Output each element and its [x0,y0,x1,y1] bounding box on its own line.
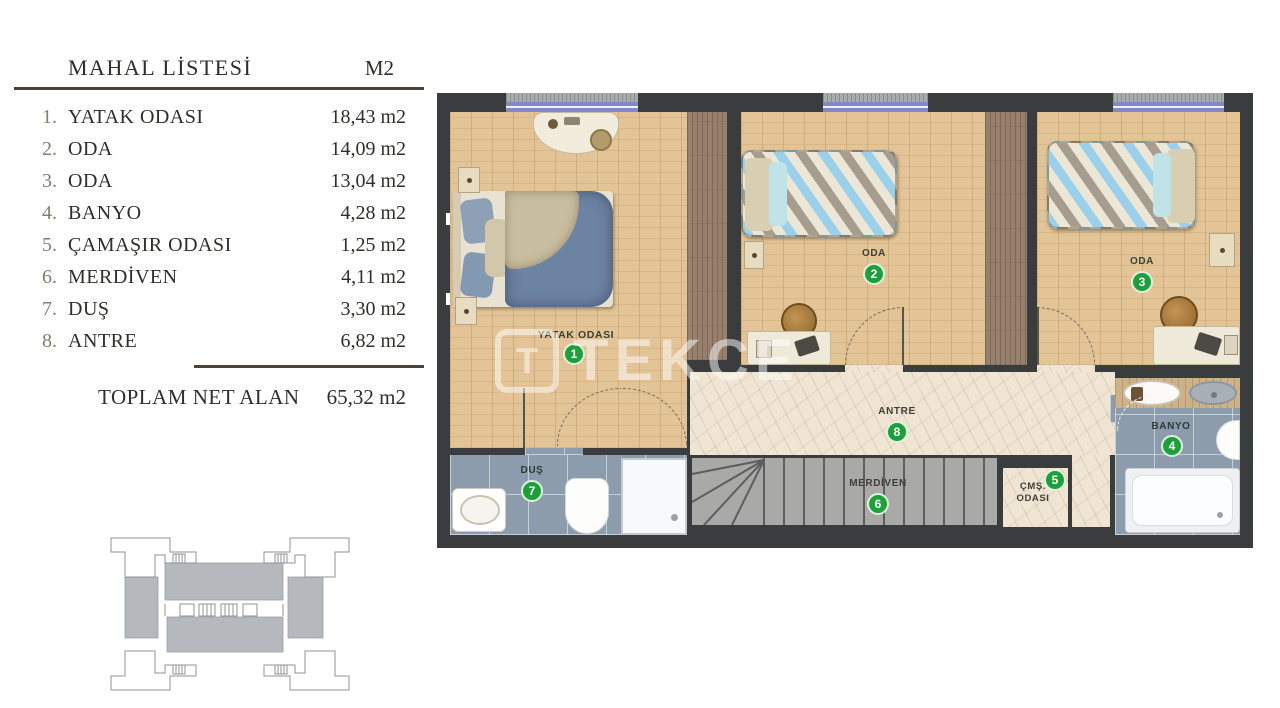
row-number: 2. [42,138,57,161]
room-badge-4: 4 [1161,435,1183,457]
room-label-antre: ANTRE [878,406,915,417]
total-rule [194,365,424,368]
row-area: 4,28 m2 [340,202,406,225]
knob [464,309,469,314]
door-gap [845,365,903,372]
stairs-graphic [692,458,997,525]
pillow [1153,153,1171,217]
knob [752,253,757,258]
window-sill [506,93,638,102]
row-area: 14,09 m2 [330,138,406,161]
header-rule [14,87,424,90]
door-gap [525,448,583,455]
wardrobe [687,112,727,360]
row-label: ODA [68,138,113,161]
table-row: 4. BANYO 4,28 m2 [14,202,424,226]
row-area: 3,30 m2 [340,298,406,321]
toilet [565,478,609,534]
total-label: TOPLAM NET ALAN [98,385,300,410]
table-row: 5. ÇAMAŞIR ODASI 1,25 m2 [14,234,424,258]
single-bed [1047,141,1195,229]
window [1113,93,1224,112]
desk-item [1194,332,1222,357]
wall-marker [446,293,450,305]
basket-icon [590,129,612,151]
row-area: 18,43 m2 [330,106,406,129]
row-number: 5. [42,234,57,257]
door-leaf [902,307,904,365]
watermark: T TEKCE [495,327,800,394]
table-unit-header: M2 [365,56,394,81]
room-label-oda3: ODA [1130,256,1154,267]
row-number: 6. [42,266,57,289]
room-badge-5: 5 [1044,469,1066,491]
room-badge-7: 7 [521,480,543,502]
row-label: BANYO [68,202,142,225]
single-bed [741,150,897,237]
double-bed [453,191,613,307]
row-number: 7. [42,298,57,321]
table-row: 6. MERDİVEN 4,11 m2 [14,266,424,290]
table-row: 2. ODA 14,09 m2 [14,138,424,162]
sink-counter [452,488,506,532]
desk [1153,326,1240,365]
window-sill [823,93,928,102]
pillow [1167,149,1195,223]
room-badge-3: 3 [1131,271,1153,293]
bathtub-inner [1132,475,1233,526]
nightstand [1209,233,1235,267]
room-label-banyo: BANYO [1151,421,1190,432]
room-label-dus: DUŞ [521,465,544,476]
row-area: 4,11 m2 [341,266,406,289]
watermark-logo-icon: T [495,329,559,393]
room-badge-8: 8 [886,421,908,443]
shower-cabin [621,458,687,535]
table-row: 1. YATAK ODASI 18,43 m2 [14,106,424,130]
total-value: 65,32 m2 [327,385,406,410]
sink [1189,381,1237,405]
row-number: 8. [42,330,57,353]
window [823,93,928,112]
drain-icon [1217,512,1223,518]
desk-item [548,119,558,129]
row-number: 4. [42,202,57,225]
bathtub [1125,468,1240,533]
row-label: ODA [68,170,113,193]
door-gap [1037,365,1095,372]
room-badge-2: 2 [863,263,885,285]
knob [1220,248,1225,253]
drain-icon [1211,392,1217,398]
room-badge-6: 6 [867,493,889,515]
nightstand [455,297,477,325]
drain-icon [671,514,678,521]
nightstand [458,167,480,193]
sink [460,495,500,525]
window [506,93,638,112]
desk-item [1224,335,1238,355]
row-area: 6,82 m2 [340,330,406,353]
desk-item [564,117,580,125]
room-label-oda2: ODA [862,248,886,259]
window-sill [1113,93,1224,102]
row-area: 13,04 m2 [330,170,406,193]
room-label-merdiven: MERDİVEN [849,478,907,489]
row-label: ÇAMAŞIR ODASI [68,234,232,257]
floor-plan: YATAK ODASI 1 ODA 2 ODA 3 BANYO 4 ÇMŞ. O… [437,93,1253,548]
table-row: 3. ODA 13,04 m2 [14,170,424,194]
row-number: 1. [42,106,57,129]
table-title: MAHAL LİSTESİ [68,55,252,81]
watermark-text: TEKCE [573,327,800,394]
wall-marker [446,213,450,225]
wardrobe [985,112,1027,365]
row-label: DUŞ [68,298,110,321]
door-leaf [1037,307,1039,365]
table-row: 7. DUŞ 3,30 m2 [14,298,424,322]
room-list-table: MAHAL LİSTESİ M2 1. YATAK ODASI 18,43 m2… [14,45,424,425]
row-label: ANTRE [68,330,137,353]
door-leaf [523,388,525,448]
pillow [769,162,787,226]
hall-antre-floor [1072,455,1110,527]
knob [467,178,472,183]
row-label: MERDİVEN [68,266,178,289]
row-number: 3. [42,170,57,193]
nightstand [744,241,764,269]
site-key-plan [95,528,365,700]
table-row: 8. ANTRE 6,82 m2 [14,330,424,354]
row-area: 1,25 m2 [340,234,406,257]
row-label: YATAK ODASI [68,106,204,129]
